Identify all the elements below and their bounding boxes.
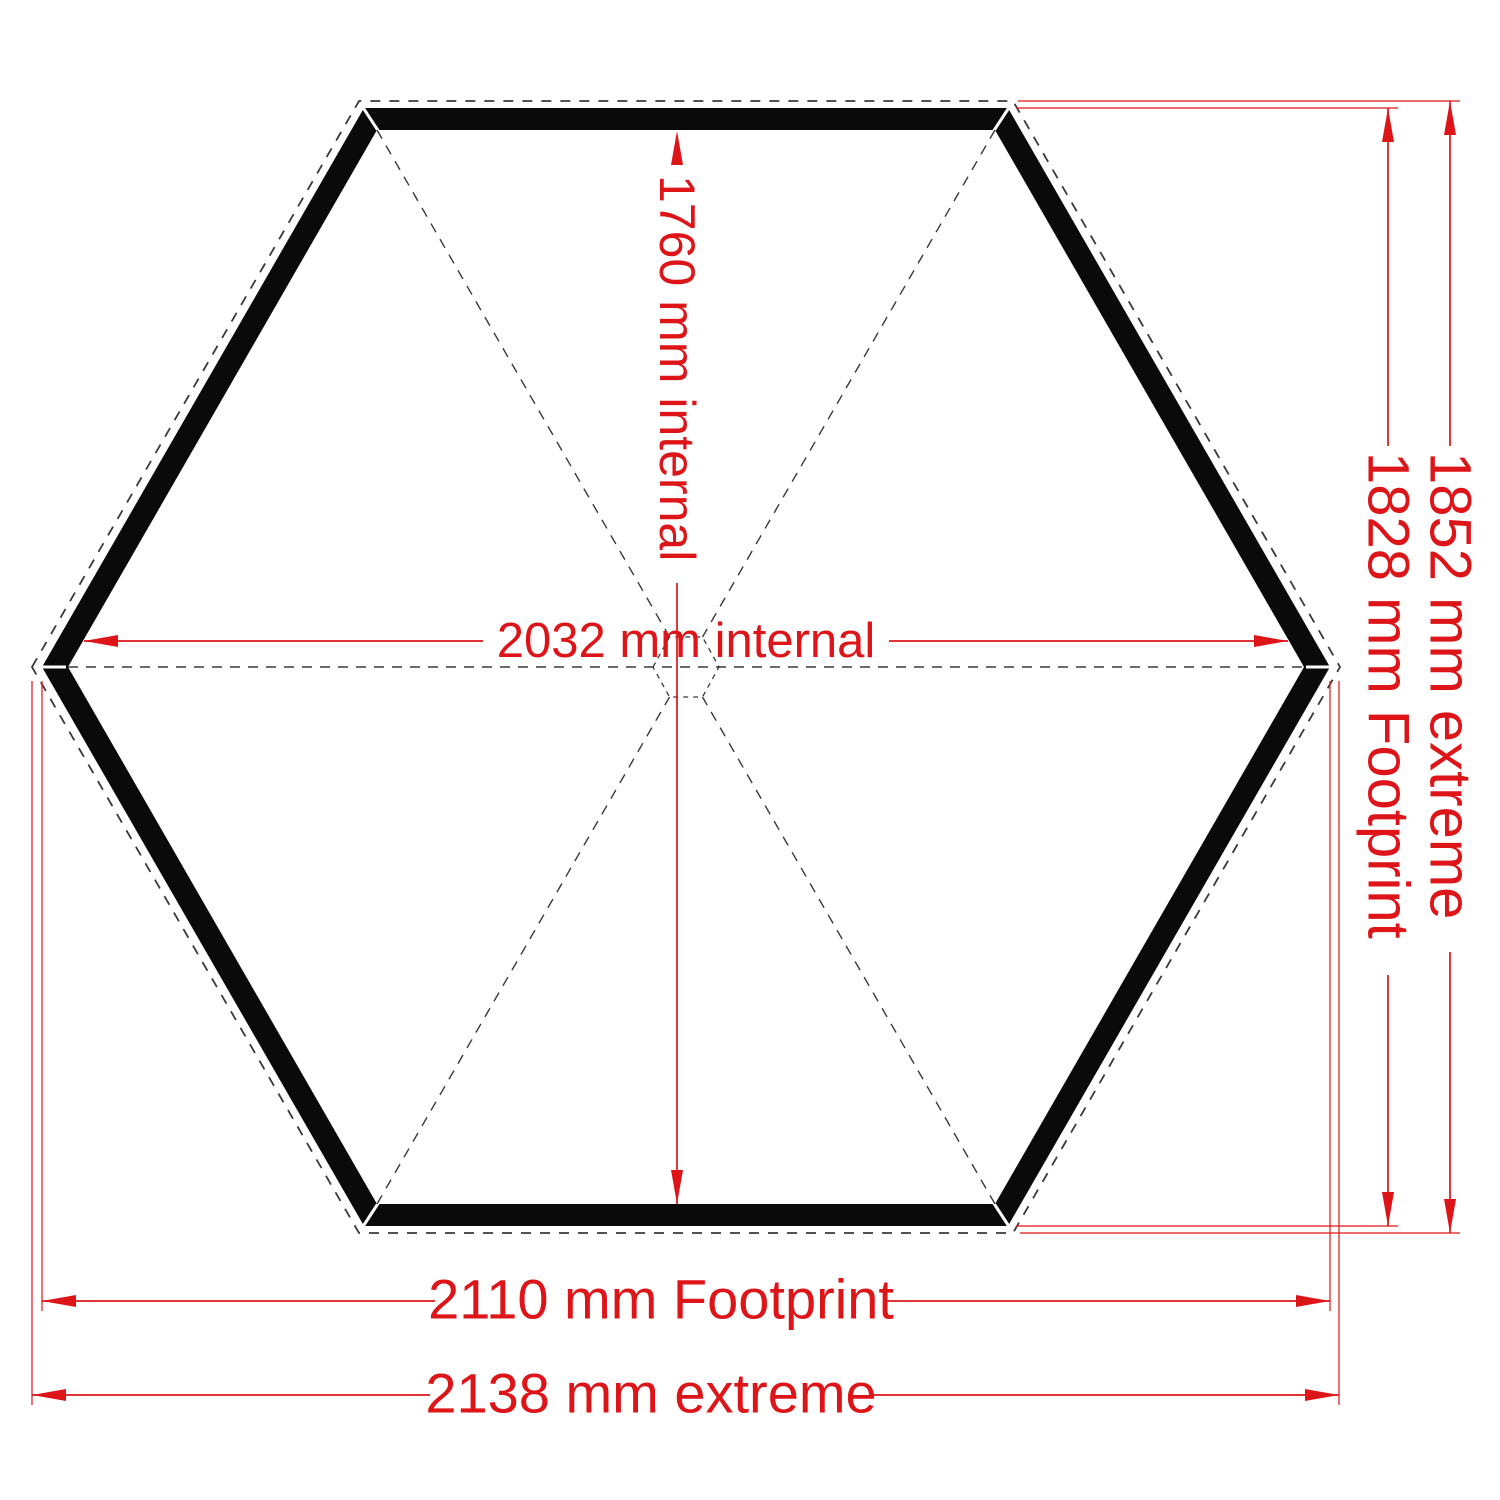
extreme-height-label: 1852 mm extreme — [1418, 452, 1483, 919]
arrow-down-icon — [1382, 1192, 1394, 1226]
spoke-top-right — [703, 130, 996, 637]
spoke-bottom-left — [377, 697, 670, 1204]
internal-height-label: 1760 mm internal — [649, 175, 705, 561]
extreme-width-label: 2138 mm extreme — [425, 1362, 876, 1425]
arrow-up-icon — [671, 131, 683, 165]
spoke-top-left — [377, 130, 670, 637]
spoke-bottom-right — [703, 697, 996, 1204]
arrow-right-icon — [1254, 635, 1288, 647]
footprint-height-label: 1828 mm Footprint — [1356, 452, 1421, 939]
floor-plan-svg: 1760 mm internal 2032 mm internal 1828 m… — [0, 0, 1500, 1500]
dimension-internal-width: 2032 mm internal — [84, 614, 1288, 668]
internal-width-label: 2032 mm internal — [497, 614, 876, 668]
arrow-right-icon — [1296, 1295, 1330, 1307]
arrow-down-icon — [1444, 1199, 1456, 1233]
drawing-page: 1760 mm internal 2032 mm internal 1828 m… — [0, 0, 1500, 1500]
footprint-width-label: 2110 mm Footprint — [428, 1268, 894, 1331]
arrow-right-icon — [1305, 1389, 1339, 1401]
arrow-down-icon — [671, 1170, 683, 1204]
